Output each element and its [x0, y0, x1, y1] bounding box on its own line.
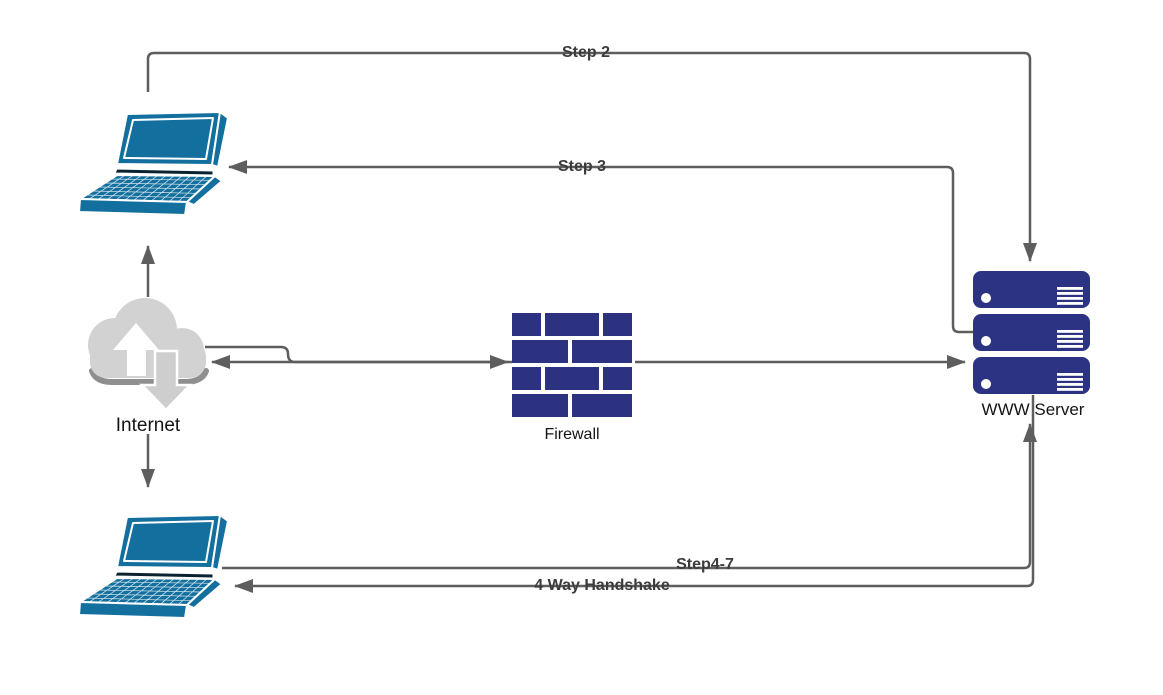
edge-label-handshake: 4 Way Handshake	[534, 577, 669, 595]
edge-label-step2: Step 2	[562, 44, 610, 62]
edge-step2	[148, 53, 1030, 261]
server-unit	[973, 357, 1090, 394]
edge-handshake	[235, 395, 1033, 586]
www-server-label: WWW Server	[982, 400, 1085, 420]
edge-step4-7	[222, 424, 1030, 568]
laptop-icon	[72, 508, 232, 628]
internet-label: Internet	[116, 415, 180, 437]
internet-cloud: Internet	[86, 293, 210, 413]
diagram-canvas: Internet Firewall	[0, 0, 1163, 695]
edge-step3	[229, 167, 973, 332]
www-server: WWW Server	[973, 271, 1090, 394]
edge-label-step3: Step 3	[558, 158, 606, 176]
firewall-label: Firewall	[544, 426, 599, 444]
client-laptop-top	[72, 105, 232, 225]
edge-internet-to-firewall	[205, 347, 508, 362]
firewall: Firewall	[512, 313, 632, 417]
laptop-icon	[72, 105, 232, 225]
server-unit	[973, 271, 1090, 308]
server-unit	[973, 314, 1090, 351]
edge-label-step4-7: Step4-7	[676, 556, 734, 574]
cloud-upload-download-icon	[86, 293, 210, 413]
server-stack-icon	[973, 271, 1090, 394]
client-laptop-bottom	[72, 508, 232, 628]
